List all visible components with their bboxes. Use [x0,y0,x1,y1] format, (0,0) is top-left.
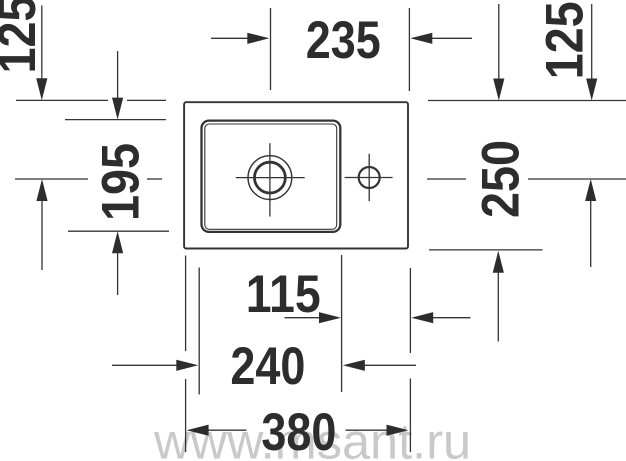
svg-text:125: 125 [535,1,594,79]
svg-text:380: 380 [261,403,336,461]
svg-text:125: 125 [0,0,47,74]
svg-text:235: 235 [306,11,381,70]
svg-text:240: 240 [230,337,305,396]
svg-text:115: 115 [246,265,321,324]
svg-text:250: 250 [471,140,530,218]
svg-text:195: 195 [91,143,150,221]
